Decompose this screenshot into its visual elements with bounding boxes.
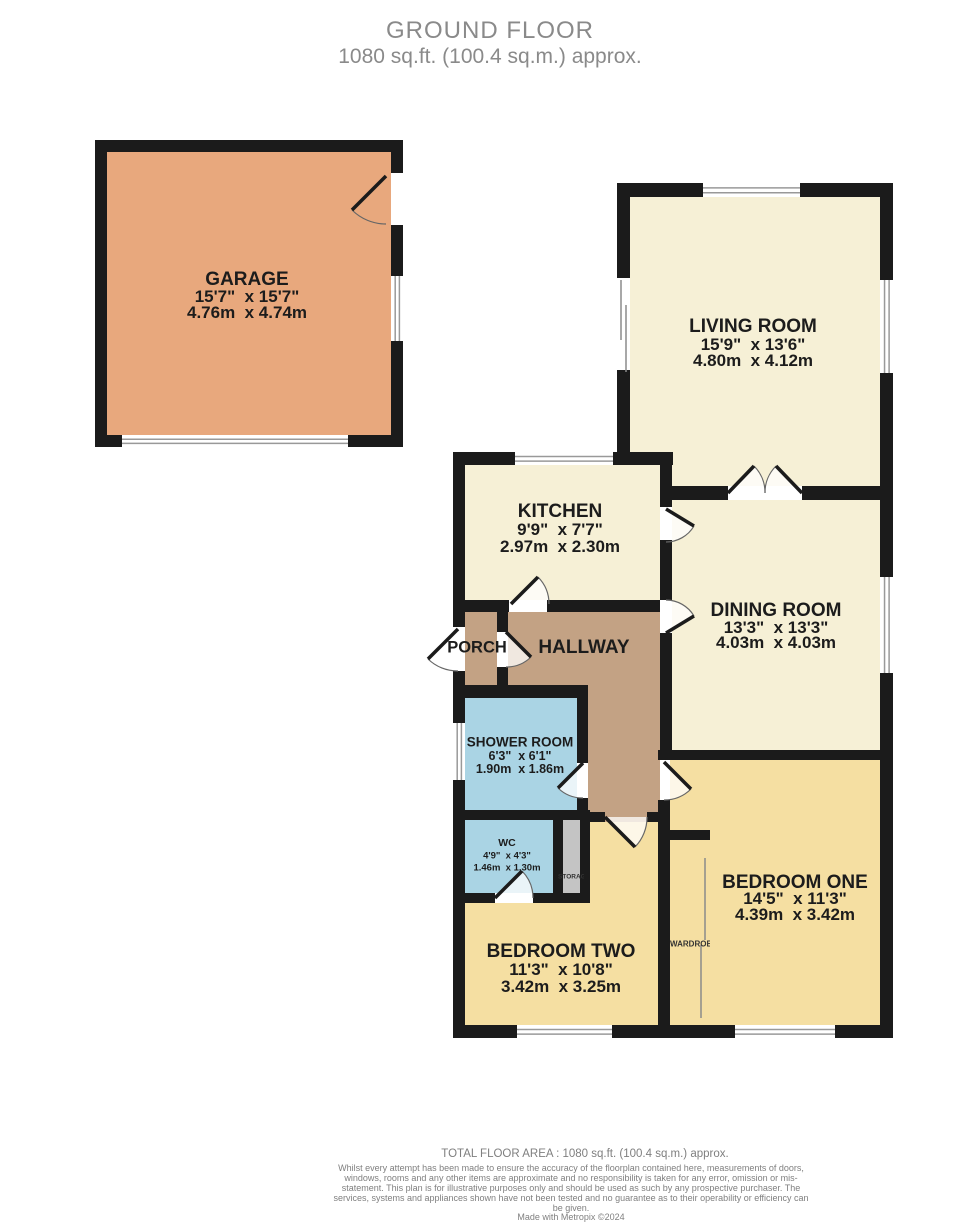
wall-segment [588, 812, 605, 822]
room-name-hallway: HALLWAY [538, 637, 629, 659]
wall-segment [660, 633, 672, 750]
room-dims-imperial-wc: 4'9" x 4'3" [483, 851, 531, 862]
wall-segment [612, 1025, 735, 1038]
wall-segment [453, 810, 590, 820]
wall-segment [802, 486, 893, 500]
wall-segment [453, 698, 465, 723]
room-fill-tan [588, 698, 660, 822]
window-5 [453, 723, 465, 780]
wall-segment [662, 486, 728, 500]
room-dims-metric-dining-room: 4.03m x 4.03m [716, 633, 836, 653]
wall-segment [880, 673, 893, 1038]
small-label-wardrobe: WARDROBE [670, 940, 710, 949]
window-3 [515, 452, 613, 465]
wall-segment [660, 540, 672, 600]
room-dims-metric-bedroom-one: 4.39m x 3.42m [735, 905, 855, 925]
room-name-shower-room: SHOWER ROOM [467, 735, 574, 750]
wall-segment [95, 435, 122, 447]
wall-segment [670, 830, 710, 840]
room-dims-metric-bedroom-two: 3.42m x 3.25m [501, 977, 621, 997]
wall-segment [453, 600, 509, 612]
window-2 [617, 278, 630, 370]
wall-segment [800, 183, 893, 197]
window-9 [122, 435, 348, 447]
wall-segment [95, 140, 403, 152]
wall-segment [391, 225, 403, 276]
room-dims-metric-wc: 1.46m x 1.30m [473, 863, 540, 874]
wall-segment [497, 667, 508, 685]
wall-segment [497, 612, 508, 632]
room-name-porch: PORCH [447, 639, 507, 658]
wall-segment [391, 341, 403, 447]
wall-segment [547, 600, 660, 612]
room-dims-metric-shower-room: 1.90m x 1.86m [476, 762, 564, 776]
wall-segment [880, 197, 893, 280]
wall-segment [453, 893, 495, 903]
window-0 [703, 183, 800, 197]
wall-segment [577, 685, 588, 763]
wall-segment [880, 373, 893, 577]
wall-segment [617, 370, 630, 452]
floorplan-page: GROUND FLOOR 1080 sq.ft. (100.4 sq.m.) a… [0, 0, 980, 1223]
room-name-wc: WC [498, 837, 516, 849]
room-dims-metric-kitchen: 2.97m x 2.30m [500, 537, 620, 557]
wall-segment [658, 800, 670, 1038]
room-dims-metric-garage: 4.76m x 4.74m [187, 303, 307, 323]
wall-segment [453, 612, 465, 627]
window-8 [391, 276, 403, 341]
room-dims-imperial-shower-room: 6'3" x 6'1" [489, 749, 552, 763]
wall-segment [580, 820, 590, 893]
wall-segment [453, 685, 588, 698]
disclaimer-text: Whilst every attempt has been made to en… [331, 1163, 811, 1213]
wall-segment [553, 820, 563, 893]
wall-segment [658, 750, 893, 760]
wall-segment [617, 197, 630, 278]
window-1 [880, 280, 893, 373]
wall-segment [95, 140, 107, 447]
small-label-storage: STORAGE [558, 874, 584, 881]
wall-segment [453, 452, 465, 612]
room-dims-metric-living-room: 4.80m x 4.12m [693, 351, 813, 371]
wall-segment [453, 1025, 517, 1038]
wall-segment [391, 140, 403, 173]
credit-text: Made with Metropix ©2024 [331, 1212, 811, 1222]
window-4 [880, 577, 893, 673]
total-floor-area: TOTAL FLOOR AREA : 1080 sq.ft. (100.4 sq… [185, 1148, 980, 1160]
room-fill-gray [563, 820, 580, 893]
wall-segment [835, 1025, 893, 1038]
wall-segment [453, 780, 465, 903]
window-6 [517, 1025, 612, 1038]
wall-segment [453, 903, 465, 1038]
wall-segment [617, 183, 703, 197]
wall-segment [533, 893, 590, 903]
window-7 [735, 1025, 835, 1038]
